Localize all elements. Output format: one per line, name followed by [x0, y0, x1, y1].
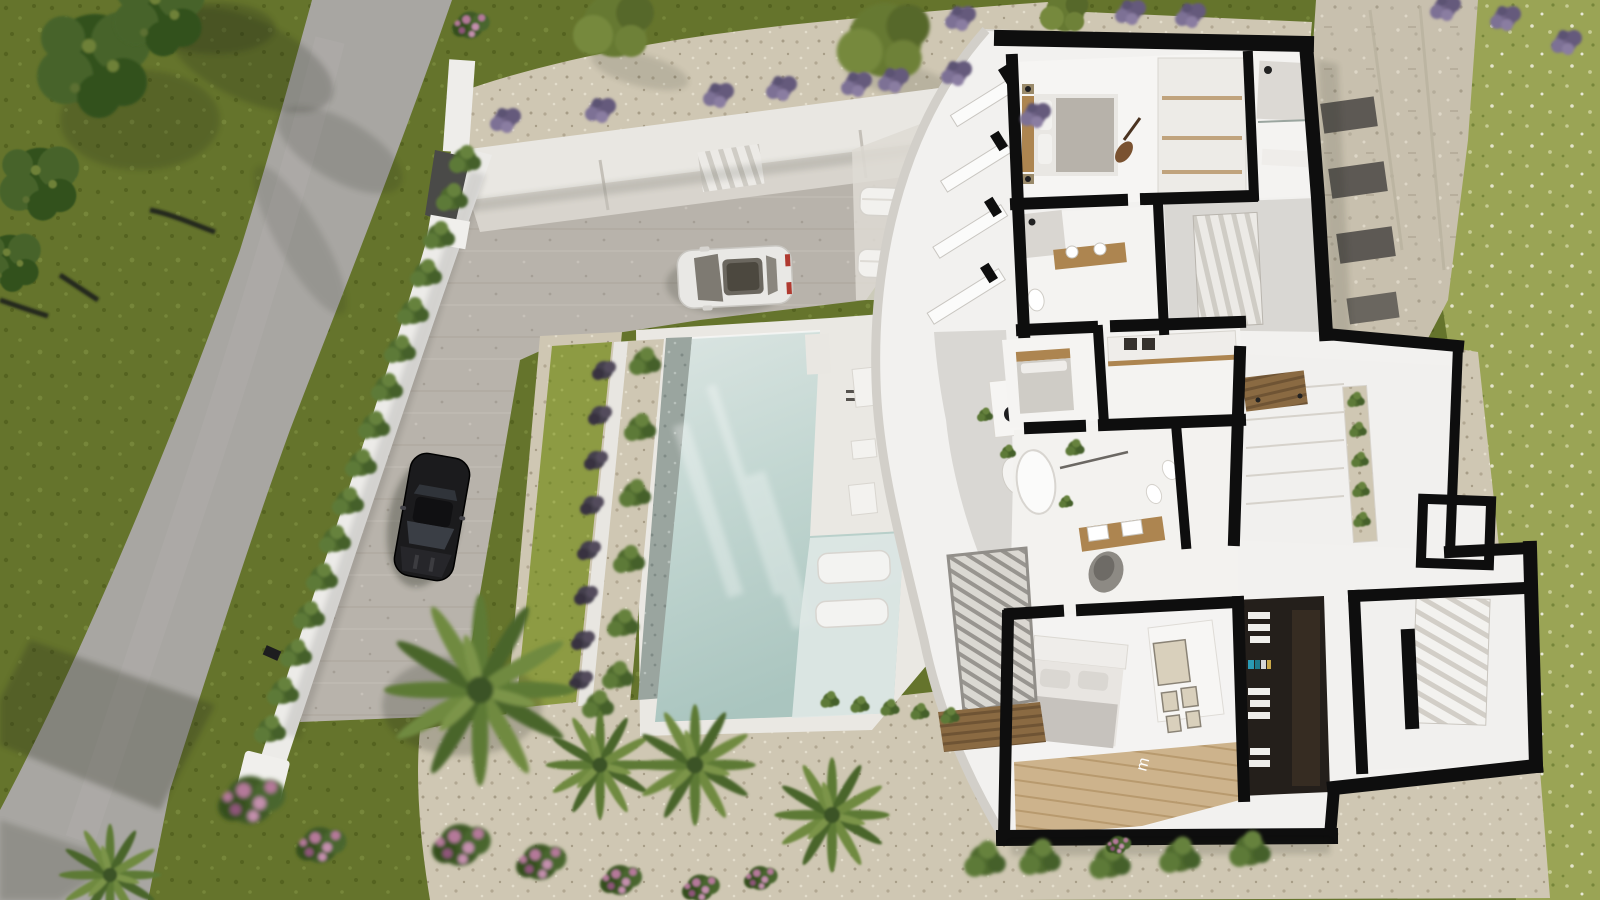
villa-aerial-render: m: [0, 0, 1600, 900]
staircase-room: [1356, 590, 1532, 770]
side-table-2: [851, 439, 877, 459]
rear-window: [766, 255, 778, 295]
side-table-3: [849, 483, 878, 516]
pillow: [1039, 668, 1071, 689]
closet-books: [1248, 660, 1271, 669]
bedroom-1: [1012, 52, 1252, 208]
washer: [1124, 338, 1137, 350]
pool-step: [805, 333, 831, 374]
hall-staircase: [1193, 212, 1263, 327]
sink: [1066, 246, 1078, 258]
taillight-left: [785, 254, 791, 266]
dryer: [1142, 338, 1155, 350]
closet-side: [1292, 610, 1320, 786]
vanity: [1262, 149, 1309, 167]
sink: [1094, 243, 1106, 255]
white-car: [676, 242, 793, 312]
master-bathroom: [1010, 422, 1238, 614]
louvered-pergola: [948, 548, 1036, 712]
sink: [1121, 520, 1143, 537]
sink: [1087, 525, 1109, 542]
ledge-lounger-2: [815, 598, 888, 628]
wardrobe: [1158, 58, 1246, 202]
bathroom-2: [1018, 206, 1162, 332]
staircase: [1412, 597, 1490, 726]
laundry-closet: [1104, 328, 1246, 428]
bed-blanket: [1056, 98, 1114, 172]
ledge-lounger-1: [817, 550, 890, 584]
lamp: [1025, 86, 1031, 92]
shower-head: [1264, 66, 1272, 74]
pillow: [1077, 670, 1109, 691]
bedroom-2: [1002, 334, 1104, 428]
scene-canvas: m: [0, 0, 1600, 900]
pillow: [1038, 134, 1052, 164]
lamp: [1025, 176, 1031, 182]
taillight-right: [786, 282, 792, 294]
sunroof: [726, 262, 759, 292]
